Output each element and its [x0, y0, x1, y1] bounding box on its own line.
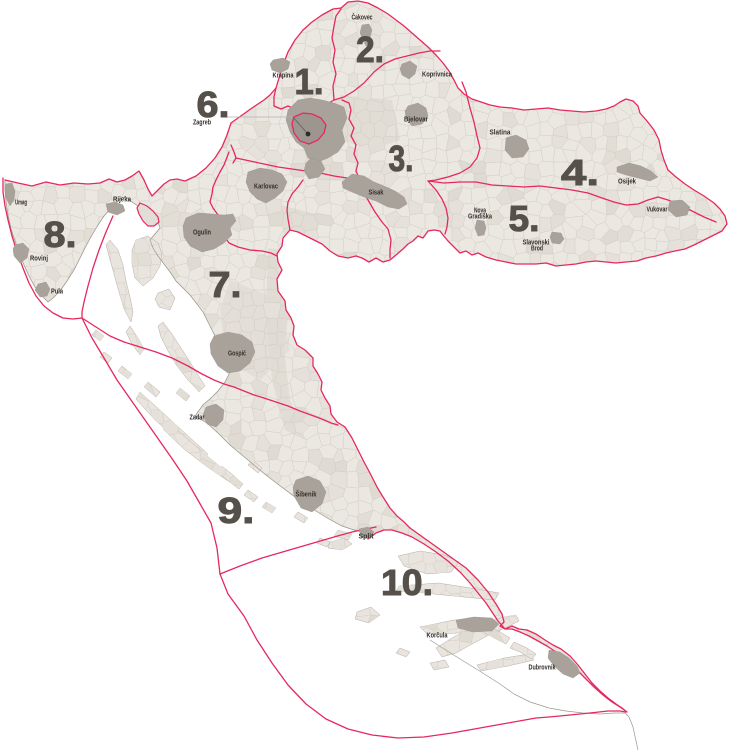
svg-text:Korčula: Korčula — [427, 633, 448, 640]
svg-text:2.: 2. — [356, 29, 384, 70]
svg-text:Krapina: Krapina — [273, 73, 294, 80]
svg-text:Šibenik: Šibenik — [296, 490, 317, 499]
svg-text:8.: 8. — [44, 214, 77, 255]
svg-text:Ogulin: Ogulin — [193, 230, 211, 237]
svg-text:Bjelovar: Bjelovar — [404, 117, 428, 124]
svg-text:Čakovec: Čakovec — [352, 13, 373, 22]
svg-text:Brod: Brod — [531, 246, 543, 253]
svg-text:10.: 10. — [381, 562, 433, 603]
svg-text:Pula: Pula — [51, 289, 63, 296]
svg-text:Split: Split — [359, 534, 375, 541]
svg-text:7.: 7. — [209, 264, 242, 305]
svg-text:Gospić: Gospić — [228, 351, 246, 358]
svg-text:6.: 6. — [197, 84, 230, 125]
svg-text:Karlovac: Karlovac — [254, 184, 278, 191]
svg-text:Rovinj: Rovinj — [30, 256, 48, 263]
svg-text:Osijek: Osijek — [618, 179, 636, 186]
svg-text:Dubrovnik: Dubrovnik — [529, 665, 556, 672]
svg-text:Umag: Umag — [15, 200, 27, 207]
svg-text:5.: 5. — [509, 198, 540, 239]
svg-text:9.: 9. — [218, 490, 255, 531]
svg-text:Vukovar: Vukovar — [647, 207, 668, 214]
svg-text:1.: 1. — [295, 61, 324, 102]
svg-text:Rijeka: Rijeka — [113, 197, 131, 204]
svg-text:Gradiška: Gradiška — [468, 214, 492, 221]
svg-text:Slatina: Slatina — [490, 130, 511, 137]
svg-text:4.: 4. — [561, 152, 599, 193]
svg-text:3.: 3. — [389, 138, 414, 179]
svg-text:Zadar: Zadar — [190, 415, 205, 422]
svg-text:Sisak: Sisak — [369, 190, 384, 197]
svg-text:Koprivnica: Koprivnica — [422, 72, 452, 79]
